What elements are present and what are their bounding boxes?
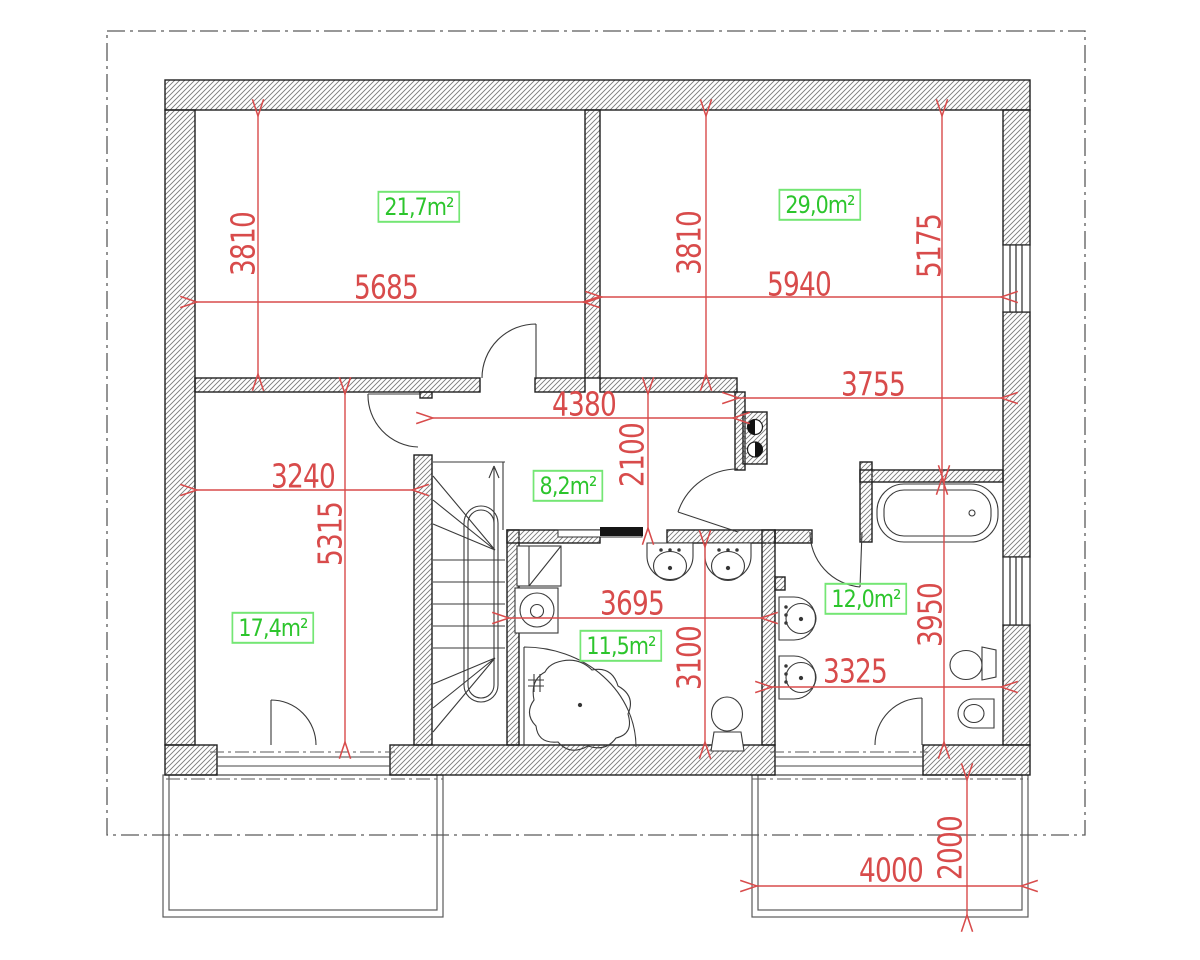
room-area-label-hall: 8,2m² [533, 470, 604, 502]
dimension-label: 3755 [841, 368, 905, 401]
dimension-label: 4000 [859, 854, 923, 887]
dimension-label: 3325 [823, 655, 887, 688]
dimension-label: 5940 [767, 268, 831, 301]
toilet [711, 697, 744, 751]
floor-plan-canvas: 3810 5685 3810 5940 5175 3755 4380 2100 … [0, 0, 1200, 960]
wall-segment [165, 80, 1030, 110]
door-hall-corridor [678, 469, 738, 532]
dimension-label: 5175 [913, 214, 946, 278]
corner-bathtub [524, 647, 636, 750]
dimension-label: 2100 [616, 423, 649, 487]
dimension-label: 4380 [552, 388, 616, 421]
dimension-label: 3695 [600, 587, 664, 620]
wall-segment [1003, 625, 1030, 745]
wall-segment [860, 470, 1003, 482]
dimension-label: 3240 [271, 460, 335, 493]
dimension-label: 3100 [673, 626, 706, 690]
shower-tray [517, 546, 561, 586]
sink [647, 543, 693, 581]
wall-segment [923, 745, 1030, 775]
sliding-door [558, 527, 643, 537]
wall-segment [600, 378, 737, 392]
dimension-label: 3810 [227, 212, 260, 276]
wall-segment [165, 110, 195, 745]
room-area-label-room-top-right: 29,0m² [779, 189, 862, 221]
terrace-left [163, 775, 443, 917]
door-terrace-right [875, 698, 922, 745]
toilet [950, 647, 996, 680]
door-terrace-left [271, 700, 316, 745]
door-bedroom-bottom-left [368, 394, 420, 447]
staircase [433, 462, 505, 732]
wall-segment [775, 530, 812, 543]
wall-segment [414, 455, 432, 745]
room-area-label-bedroom-top-left: 21,7m² [378, 191, 461, 223]
wall-segment [1003, 110, 1030, 245]
sink [705, 543, 751, 581]
terrace-right [752, 775, 1028, 917]
room-area-label-bathroom-right: 12,0m² [825, 583, 908, 615]
bathtub [877, 484, 998, 542]
wall-segment [1003, 312, 1030, 557]
faucet-icon [528, 674, 544, 692]
washing-machine [515, 588, 558, 633]
wall-segment [585, 110, 600, 378]
bidet [958, 699, 994, 728]
dimension-label: 5315 [314, 502, 347, 566]
chimney [743, 412, 767, 464]
wall-segment [667, 530, 775, 543]
room-area-label-bathroom: 11,5m² [580, 630, 663, 662]
wall-segment [762, 530, 775, 745]
room-area-label-bedroom-bottom-left: 17,4m² [232, 612, 315, 644]
wall-segment [165, 745, 217, 775]
dimension-label: 3950 [914, 583, 947, 647]
dimension-label: 2000 [934, 816, 967, 880]
sink [779, 597, 816, 640]
door-bedroom-top-left [482, 324, 536, 378]
wall-segment [195, 378, 480, 392]
wall-segment [420, 392, 432, 398]
wall-segment [775, 577, 785, 590]
door-bathroom-right [810, 532, 862, 587]
sink [779, 656, 816, 699]
dimension-label: 3810 [673, 211, 706, 275]
wall-structure [165, 80, 1030, 775]
dimension-label: 5685 [354, 271, 418, 304]
